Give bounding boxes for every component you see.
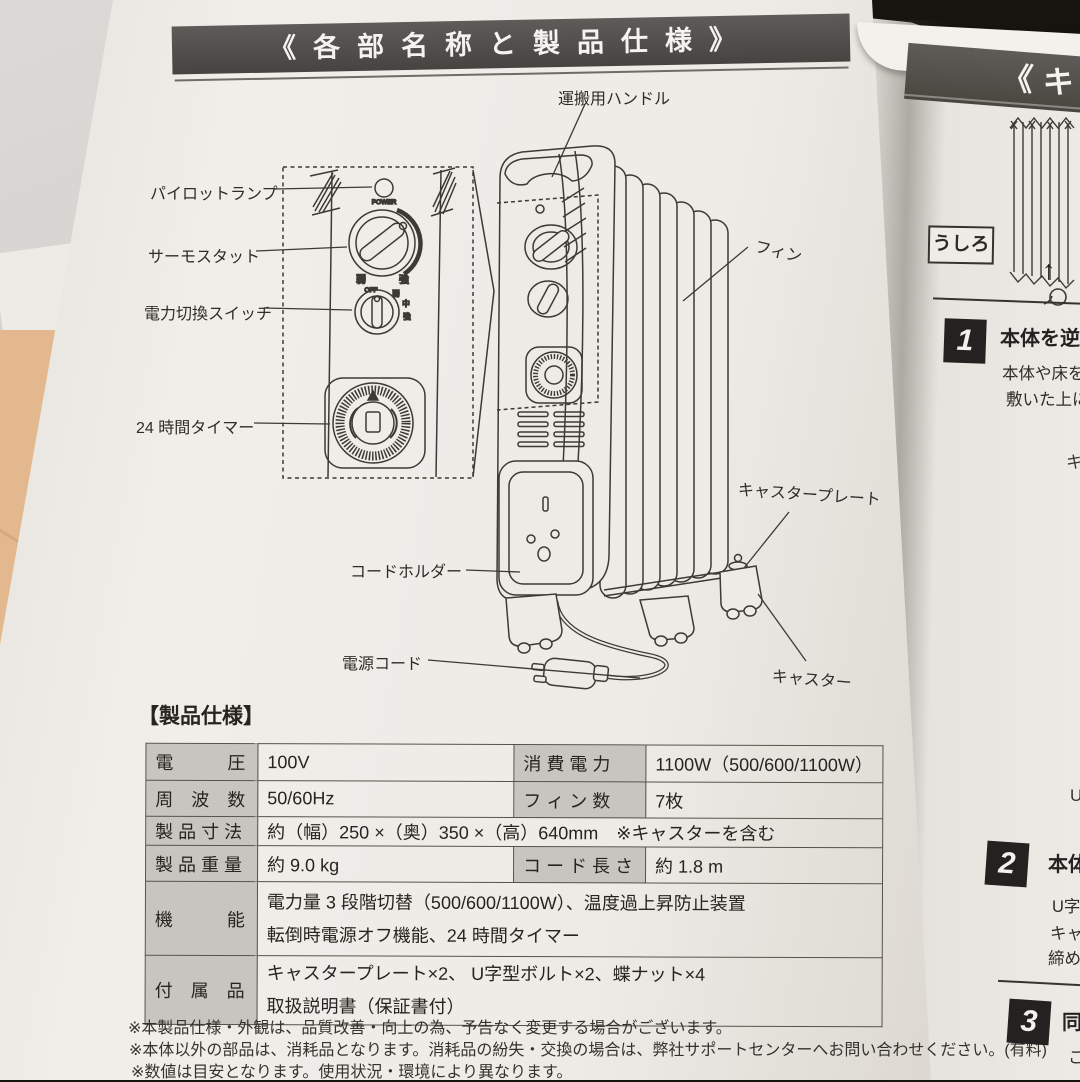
table-row: 機 能 電力量 3 段階切替（500/600/1100W）、温度過上昇防止装置 … — [145, 881, 882, 958]
table-row: 製 品 寸 法 約（幅）250 ×（奥）350 ×（高）640mm ※キャスター… — [146, 816, 883, 848]
front-foot-caster — [506, 594, 562, 653]
switch-low-label: 弱 — [392, 289, 400, 298]
spec-value-dimensions: 約（幅）250 ×（奥）350 ×（高）640mm ※キャスターを含む — [258, 817, 883, 848]
spec-label-power: 消 費 電 力 — [514, 744, 646, 781]
thermostat-high-label: 強 — [399, 273, 409, 286]
spec-table: 電 圧 100V 消 費 電 力 1100W（500/600/1100W） 周 … — [145, 743, 884, 1028]
spec-label-functions: 機 能 — [145, 881, 257, 955]
step-1-heading: 本体を逆さ — [1000, 322, 1080, 351]
label-handle: 運搬用ハンドル — [558, 85, 670, 109]
thermostat-low-label: 弱 — [356, 274, 366, 286]
thermostat-dial-icon — [349, 210, 420, 276]
label-timer: 24 時間タイマー — [136, 414, 252, 438]
timer-dial-icon — [325, 378, 425, 468]
footnote-1: ※本製品仕様・外観は、品質改善・向上の為、予告なく変更する場合がございます。 — [128, 1014, 732, 1038]
step-2-line3: 締め — [1048, 945, 1080, 969]
diagram-linework: POWER 弱 強 OFF 弱 中 強 — [254, 104, 806, 690]
step-1-number: 1 — [943, 318, 987, 363]
plug-icon — [532, 657, 609, 689]
heater-parts-diagram: POWER 弱 強 OFF 弱 中 強 — [130, 70, 900, 720]
enlarged-control-panel: POWER 弱 強 OFF 弱 中 強 — [283, 167, 494, 478]
spec-value-fins: 7枚 — [646, 782, 883, 819]
spec-label-voltage: 電 圧 — [146, 743, 258, 780]
step-3-line1: こ — [1068, 1044, 1080, 1068]
label-cord-holder: コードホルダー — [344, 558, 462, 582]
spec-value-cord-length: 約 1.8 m — [646, 847, 883, 884]
spec-value-functions: 電力量 3 段階切替（500/600/1100W）、温度過上昇防止装置 転倒時電… — [257, 882, 882, 958]
switch-mid-label: 中 — [402, 298, 410, 308]
rear-fins-diagram — [1000, 104, 1080, 304]
projection-lines — [473, 170, 494, 477]
switch-off-label: OFF — [365, 287, 378, 294]
bolt-icon — [1040, 284, 1074, 310]
spec-label-weight: 製 品 重 量 — [146, 845, 258, 881]
spec-label-freq: 周 波 数 — [146, 780, 258, 816]
footnote-2: ※本体以外の部品は、消耗品となります。消耗品の紛失・交換の場合は、弊社サポートセ… — [129, 1036, 1047, 1060]
step-3-number: 3 — [1007, 999, 1052, 1046]
step-2-line2: キャ — [1050, 920, 1080, 944]
footnote-3: ※数値は目安となります。使用状況・環境により異なります。 — [131, 1058, 572, 1082]
table-row: 製 品 重 量 約 9.0 kg コ ー ド 長 さ 約 1.8 m — [146, 845, 883, 884]
spec-label-fins: フ ィ ン 数 — [514, 781, 646, 817]
step-2-line1: U字 — [1052, 893, 1080, 917]
spec-value-power: 1100W（500/600/1100W） — [646, 745, 883, 783]
functions-line2: 転倒時電源オフ機能、24 時間タイマー — [267, 919, 873, 954]
spec-label-dimensions: 製 品 寸 法 — [146, 816, 258, 845]
label-pilot-lamp: パイロットランプ — [150, 180, 272, 204]
step-1-line2: 敷いた上にヒ — [1006, 386, 1080, 410]
step-2-heading: 本体 — [1048, 848, 1080, 877]
partial-char-2: U — [1070, 786, 1080, 806]
heater-front-column — [497, 146, 615, 653]
label-thermostat: サーモスタット — [148, 243, 254, 267]
partial-char-1: キ — [1066, 448, 1080, 473]
step-2-number: 2 — [985, 841, 1030, 888]
spec-value-weight: 約 9.0 kg — [258, 846, 514, 883]
power-lamp-label: POWER — [372, 199, 397, 206]
cord-holder-panel — [499, 461, 593, 595]
step-1-line1: 本体や床を傷 — [1002, 360, 1080, 384]
spec-value-voltage: 100V — [258, 744, 514, 782]
label-power-cord: 電源コード — [334, 650, 422, 674]
thermostat-knob-small — [525, 225, 577, 269]
pilot-lamp-icon — [375, 179, 393, 197]
step-3-heading: 同 — [1062, 1006, 1080, 1035]
accessories-line1: キャスタープレート×2、 U字型ボルト×2、蝶ナット×4 — [267, 957, 873, 992]
functions-line1: 電力量 3 段階切替（500/600/1100W）、温度過上昇防止装置 — [267, 886, 873, 921]
spec-label-cord-length: コ ー ド 長 さ — [514, 846, 646, 882]
switch-high-label: 強 — [403, 311, 411, 321]
table-row: 周 波 数 50/60Hz フ ィ ン 数 7枚 — [146, 780, 883, 819]
fins — [600, 166, 728, 598]
spec-heading: 【製品仕様】 — [138, 700, 264, 730]
arrow-up-icon: ↑ — [1042, 255, 1056, 286]
spec-value-freq: 50/60Hz — [258, 781, 514, 818]
label-power-switch: 電力切換スイッチ — [144, 300, 262, 324]
back-side-label: うしろ — [928, 225, 995, 264]
table-row: 電 圧 100V 消 費 電 力 1100W（500/600/1100W） — [146, 743, 883, 783]
